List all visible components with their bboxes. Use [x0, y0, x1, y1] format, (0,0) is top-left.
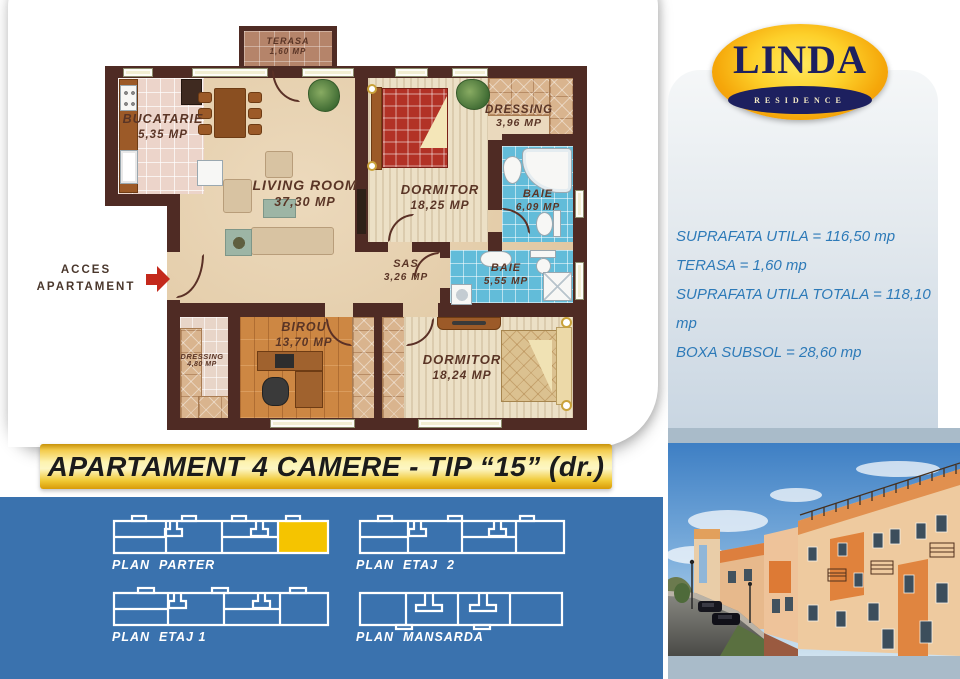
wall — [167, 206, 180, 252]
monitor — [275, 354, 294, 368]
toilet-tank — [530, 250, 556, 258]
bed2-pillows — [556, 327, 572, 405]
wall — [374, 317, 382, 418]
access-arrow-head — [157, 266, 170, 292]
chair — [248, 108, 262, 119]
window — [452, 68, 488, 77]
room-label-dressing2: DRESSING 4,80 MP — [174, 352, 230, 370]
wardrobe-birou — [352, 317, 376, 420]
dishwasher — [197, 160, 223, 186]
logo-residence-band: RESIDENCE — [728, 86, 872, 114]
plan-parter-label: PLAN PARTER — [112, 558, 215, 572]
plan-mansarda-label: PLAN MANSARDA — [356, 630, 484, 644]
plan-etaj2-label: PLAN ETAJ 2 — [356, 558, 455, 572]
stat-line: TERASA = 1,60 mp — [676, 251, 936, 280]
kitchen-sink — [120, 150, 138, 184]
plan-parter-thumbnail — [108, 510, 343, 560]
apartment-title: APARTAMENT 4 CAMERE - TIP “15” (dr.) — [48, 451, 605, 483]
side-table — [225, 229, 252, 256]
brochure-page: TERASA 1,60 MP BUCATARIE 5,35 MP LIVING … — [0, 0, 960, 679]
plant — [308, 79, 340, 112]
room-label-bucatarie: BUCATARIE 5,35 MP — [112, 112, 214, 142]
dressing2-shelves-bottom — [198, 396, 230, 420]
stat-line: SUPRAFATA UTILA TOTALA = 118,10 mp — [676, 280, 936, 338]
dining-table — [214, 88, 246, 138]
room-label-dressing1: DRESSING 3,96 MP — [466, 103, 572, 131]
toilet — [536, 212, 553, 236]
wall — [368, 242, 388, 252]
photo-bottom-band — [668, 656, 960, 679]
room-label-birou: BIROU 13,70 MP — [256, 320, 352, 350]
photo-top-band — [668, 428, 960, 443]
stat-line: BOXA SUBSOL = 28,60 mp — [676, 338, 936, 367]
wall — [438, 303, 587, 317]
room-label-baie2: BAIE 5,55 MP — [464, 262, 548, 288]
bed-knob — [561, 400, 572, 411]
room-label-terasa: TERASA 1,60 MP — [245, 36, 331, 57]
window — [192, 68, 268, 77]
wall — [167, 303, 325, 317]
wall — [105, 194, 180, 206]
floor-plan: TERASA 1,60 MP BUCATARIE 5,35 MP LIVING … — [0, 0, 663, 497]
room-label-dormitor1: DORMITOR 18,25 MP — [392, 182, 488, 213]
plan-etaj1-thumbnail — [108, 582, 343, 632]
wardrobe-dormitor2 — [382, 317, 406, 420]
dresser-handle — [452, 321, 486, 325]
plan-etaj1-label: PLAN ETAJ 1 — [112, 630, 206, 644]
wall — [502, 134, 573, 146]
highlighted-unit — [278, 521, 328, 553]
logo-subtitle: RESIDENCE — [754, 96, 846, 105]
chair — [198, 92, 212, 103]
plan-etaj2-thumbnail — [352, 510, 587, 560]
bed-knob — [367, 84, 377, 94]
access-arrow — [146, 274, 157, 285]
plan-mansarda-thumbnail — [352, 586, 587, 632]
residence-photo — [668, 443, 960, 656]
window — [302, 68, 354, 77]
area-stats: SUPRAFATA UTILA = 116,50 mp TERASA = 1,6… — [676, 222, 936, 367]
window — [575, 190, 584, 218]
window — [270, 419, 355, 428]
wall — [353, 303, 403, 317]
chair — [248, 124, 262, 135]
stat-line: SUPRAFATA UTILA = 116,50 mp — [676, 222, 936, 251]
wall — [488, 232, 502, 252]
desk-return — [295, 371, 323, 408]
bed-knob — [367, 161, 377, 171]
sofa — [251, 227, 334, 255]
chair — [248, 92, 262, 103]
room-label-sas: SAS 3,26 MP — [370, 258, 442, 284]
linda-residence-logo: RESIDENCE LINDA — [712, 24, 888, 120]
room-label-baie1: BAIE 6,09 MP — [500, 188, 576, 214]
room-label-dormitor2: DORMITOR 18,24 MP — [406, 352, 518, 383]
room-label-living: LIVING ROOM 37,30 MP — [248, 177, 362, 210]
wall — [440, 242, 450, 258]
apartment-title-banner: APARTAMENT 4 CAMERE - TIP “15” (dr.) — [40, 444, 612, 489]
wall — [440, 288, 450, 304]
armchair — [265, 151, 293, 178]
window — [418, 419, 502, 428]
bed1-headboard — [371, 87, 382, 170]
window — [123, 68, 153, 77]
wall — [573, 66, 587, 430]
logo-wordmark: LINDA — [712, 36, 888, 83]
stove — [120, 85, 137, 111]
exterior-mask — [8, 206, 167, 447]
bed-knob — [561, 317, 572, 328]
window — [395, 68, 428, 77]
access-label: ACCES APARTAMENT — [30, 262, 142, 297]
office-chair — [262, 377, 289, 406]
window — [575, 262, 584, 300]
